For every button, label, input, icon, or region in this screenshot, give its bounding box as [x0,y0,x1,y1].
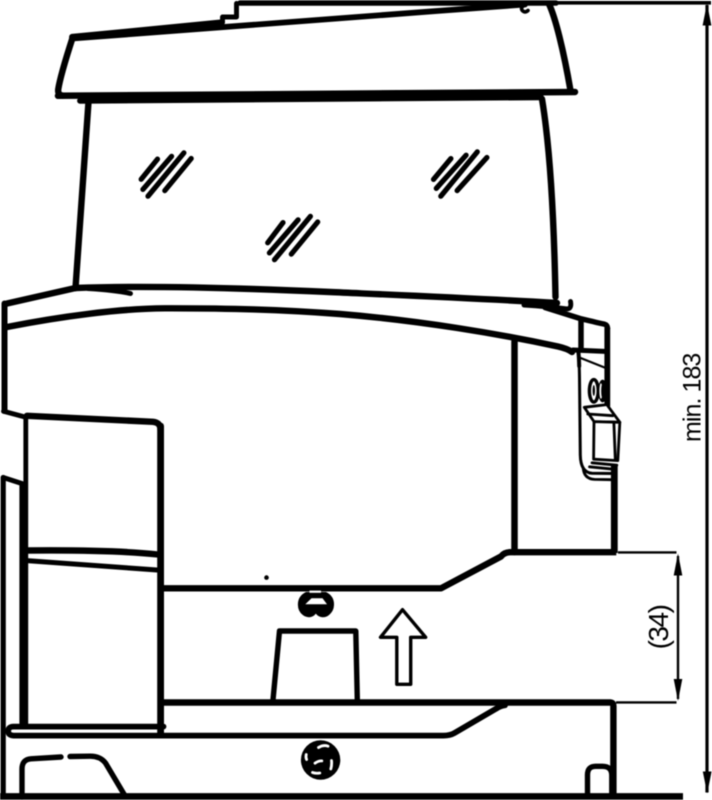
svg-text:(34): (34) [643,605,674,649]
svg-text:min. 183: min. 183 [679,354,707,442]
